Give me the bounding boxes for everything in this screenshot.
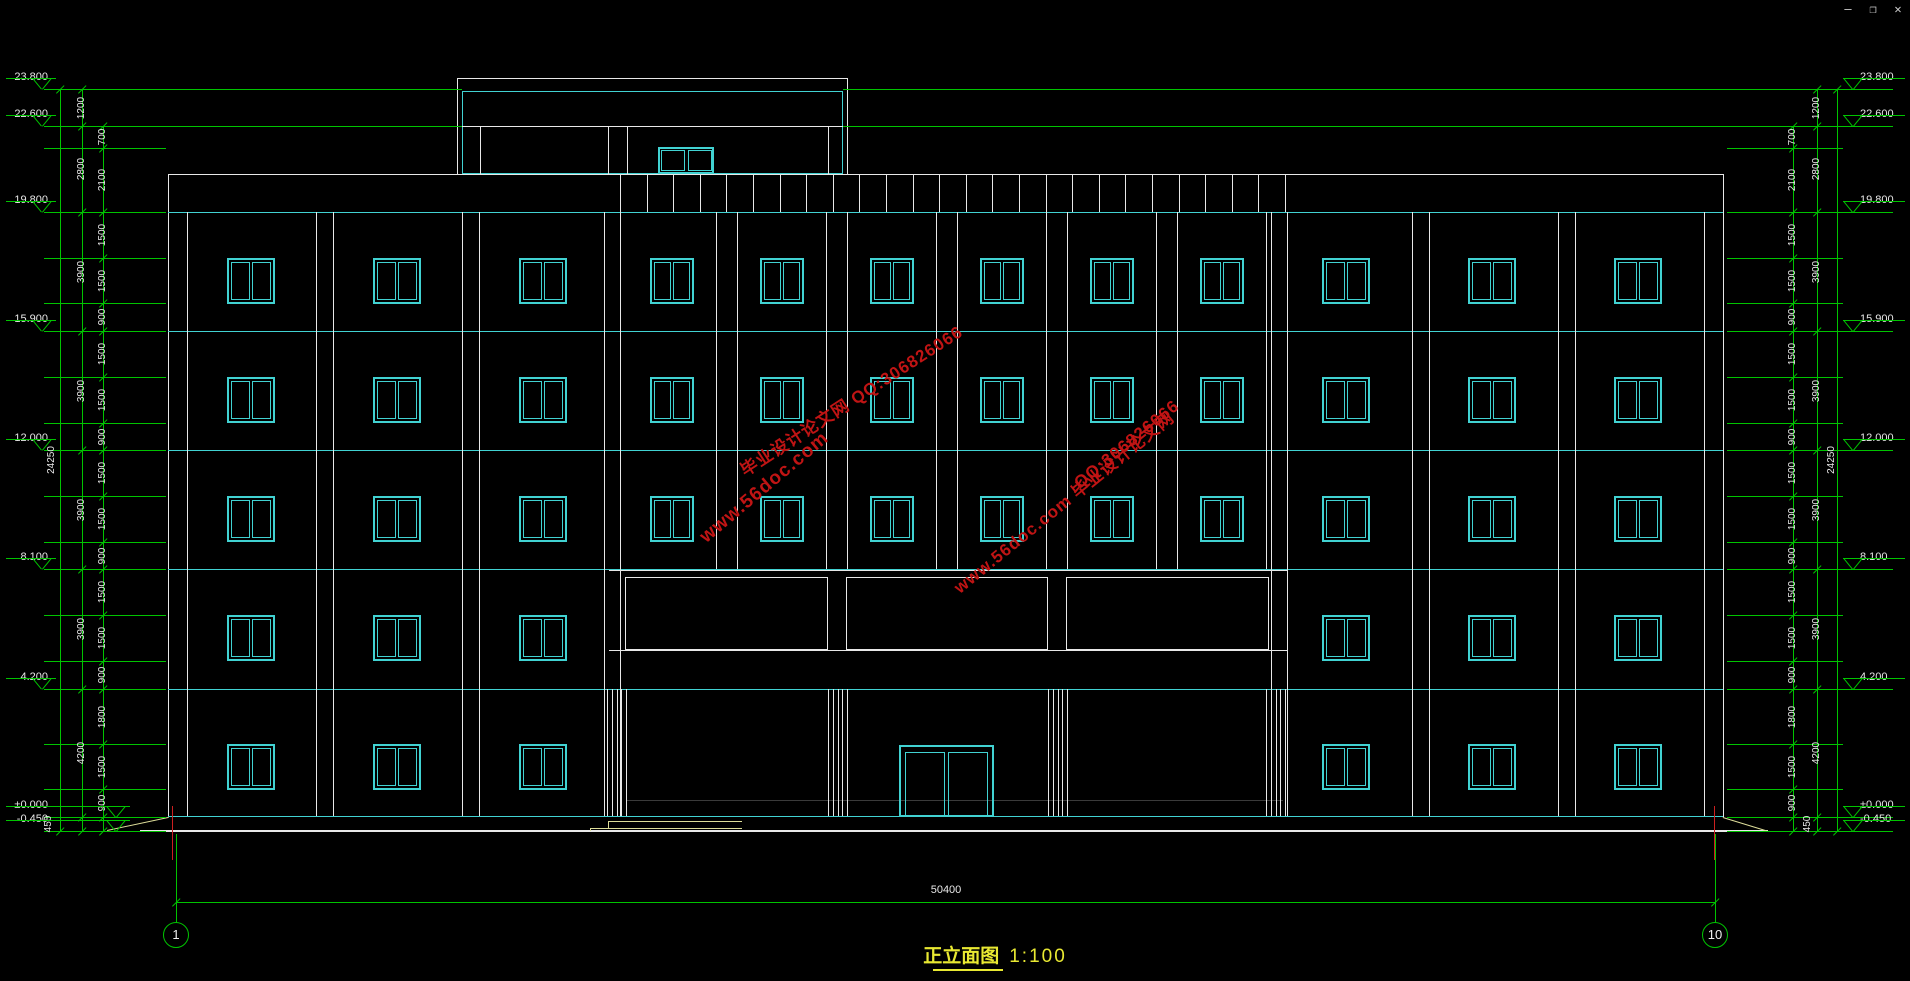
band-mullion	[780, 174, 781, 212]
column-line	[1280, 689, 1281, 816]
column-line	[1276, 689, 1277, 816]
dim-ext-line	[1727, 212, 1843, 213]
dim-label: 3900	[76, 232, 88, 312]
spandrel-panel	[625, 577, 828, 650]
window-leaf	[1618, 619, 1637, 657]
dim-ext-line	[1727, 542, 1843, 543]
band-mullion	[673, 174, 674, 212]
level-mark-leg	[1843, 439, 1853, 450]
column-line	[842, 689, 843, 816]
window-leaf	[231, 500, 250, 538]
column-line	[1053, 689, 1054, 816]
mullion-line	[1266, 212, 1267, 569]
window-leaf	[523, 619, 542, 657]
window-leaf	[984, 381, 1001, 419]
window-leaf	[1618, 748, 1637, 786]
window-leaf	[231, 748, 250, 786]
level-mark-line	[1843, 558, 1905, 559]
window-leaf	[377, 262, 396, 300]
drawing-scale: 1:100	[1009, 946, 1067, 968]
window-leaf	[1493, 500, 1512, 538]
window-leaf	[893, 262, 910, 300]
window-leaf	[1326, 381, 1345, 419]
mullion-line	[1067, 212, 1068, 569]
level-mark-leg	[1843, 806, 1853, 817]
window-leaf	[1347, 262, 1366, 300]
window-leaf	[377, 619, 396, 657]
band-mullion	[620, 174, 621, 212]
level-label: 8.100	[0, 551, 48, 563]
window-leaf	[398, 748, 417, 786]
level-mark-line	[1843, 439, 1905, 440]
band-mullion	[859, 174, 860, 212]
window-leaf	[1639, 748, 1658, 786]
band-mullion	[1205, 174, 1206, 212]
penthouse-top	[457, 78, 848, 79]
column-line	[1067, 689, 1068, 816]
window-leaf	[252, 381, 271, 419]
spandrel-panel	[1066, 577, 1269, 650]
level-mark-line	[1843, 115, 1905, 116]
window-leaf	[1472, 500, 1491, 538]
window-leaf	[544, 748, 563, 786]
column-line	[1058, 689, 1059, 816]
floor-line	[168, 212, 1723, 213]
band-mullion	[1258, 174, 1259, 212]
column-line	[1266, 689, 1267, 816]
level-label: 22.600	[0, 108, 48, 120]
band-mullion	[913, 174, 914, 212]
band-mullion	[1179, 174, 1180, 212]
window-leaf	[1347, 748, 1366, 786]
parapet-top-line	[168, 174, 1723, 175]
window-leaf	[1347, 500, 1366, 538]
penthouse-window-leaf	[688, 150, 712, 171]
pier-line	[316, 212, 317, 816]
column-line	[607, 689, 608, 816]
window-leaf	[1618, 500, 1637, 538]
band-mullion	[753, 174, 754, 212]
axis-line	[176, 834, 177, 923]
window-leaf	[377, 748, 396, 786]
band-mullion	[1125, 174, 1126, 212]
window-leaf	[1326, 500, 1345, 538]
column-line	[828, 689, 829, 816]
mullion-line	[957, 212, 958, 569]
window-leaf	[1639, 619, 1658, 657]
band-mullion	[1285, 174, 1286, 212]
window-leaf	[764, 500, 781, 538]
band-mullion	[1232, 174, 1233, 212]
level-mark-leg	[1843, 820, 1853, 831]
window-leaf	[673, 500, 690, 538]
penthouse-band-line	[462, 126, 843, 127]
level-label: 12.000	[1860, 432, 1910, 444]
window-leaf	[1493, 381, 1512, 419]
level-mark-line	[1838, 212, 1893, 213]
dim-ext-line	[1727, 258, 1843, 259]
window-leaf	[764, 381, 781, 419]
level-label: 4.200	[1860, 671, 1910, 683]
dim-label: 900	[97, 763, 109, 843]
dim-ext-line	[1727, 377, 1843, 378]
dim-ext-line	[44, 89, 462, 90]
band-mullion	[939, 174, 940, 212]
window-leaf	[1347, 381, 1366, 419]
column-line	[1285, 689, 1286, 816]
window-leaf	[252, 500, 271, 538]
level-label: -0.450	[0, 813, 48, 825]
overall-width-dimension: 50400	[905, 884, 987, 896]
window-leaf	[1472, 748, 1491, 786]
window-leaf	[398, 262, 417, 300]
column-line	[612, 689, 613, 816]
floor-line	[168, 450, 1723, 451]
window-leaf	[1003, 381, 1020, 419]
window-leaf	[1639, 381, 1658, 419]
pier-line	[333, 212, 334, 816]
window-leaf	[1204, 500, 1221, 538]
dim-ext-line	[1727, 661, 1843, 662]
column-line	[621, 689, 622, 816]
dim-ext-line	[843, 126, 1843, 127]
level-label: ±0.000	[1860, 799, 1910, 811]
mullion-line	[936, 212, 937, 569]
window-leaf	[231, 619, 250, 657]
dim-label: 3900	[1811, 589, 1823, 669]
column-line	[1062, 689, 1063, 816]
axis-line	[1715, 834, 1716, 923]
dim-label: 3900	[76, 470, 88, 550]
level-mark-leg	[116, 806, 126, 817]
window-leaf	[544, 262, 563, 300]
level-label: 19.800	[0, 194, 48, 206]
dim-label-total: 24250	[1826, 420, 1838, 500]
panel-top-line	[609, 570, 1287, 571]
step-line	[590, 828, 742, 829]
window-leaf	[544, 500, 563, 538]
level-label: 15.900	[0, 313, 48, 325]
level-mark-line	[1838, 569, 1893, 570]
window-leaf	[1326, 748, 1345, 786]
dim-ext-line	[1727, 789, 1843, 790]
penthouse-mullion	[608, 126, 609, 174]
dim-label: 3900	[76, 589, 88, 669]
window-leaf	[252, 262, 271, 300]
level-mark-leg	[1843, 115, 1853, 126]
window-leaf	[783, 500, 800, 538]
dim-ext-line	[1727, 689, 1843, 690]
window-leaf	[1347, 619, 1366, 657]
window-leaf	[1223, 262, 1240, 300]
wall-right	[1723, 174, 1724, 817]
pier-line	[479, 212, 480, 816]
dim-label: 4200	[76, 713, 88, 793]
level-mark-line	[1843, 320, 1905, 321]
dim-ext-line	[843, 89, 1843, 90]
column-line	[833, 689, 834, 816]
level-label: 23.800	[1860, 71, 1910, 83]
window-leaf	[1223, 381, 1240, 419]
window-leaf	[654, 500, 671, 538]
level-mark-leg	[1853, 820, 1863, 831]
dim-ext-line	[1727, 744, 1843, 745]
dim-label: 2800	[1811, 129, 1823, 209]
dim-ext-line	[1727, 569, 1843, 570]
window-leaf	[231, 262, 250, 300]
band-mullion	[1099, 174, 1100, 212]
level-mark-leg	[1843, 558, 1853, 569]
step-line	[608, 821, 742, 822]
pier-line	[1429, 212, 1430, 816]
dim-label: 3900	[76, 351, 88, 431]
dim-ext-line	[1727, 331, 1843, 332]
penthouse-window-leaf	[661, 150, 685, 171]
dim-label: 3900	[1811, 470, 1823, 550]
cad-canvas: — ❐ ✕ 1200120028002800390039003900390039…	[0, 0, 1910, 981]
dim-ext-line	[1727, 303, 1843, 304]
band-mullion	[992, 174, 993, 212]
window-leaf	[1204, 381, 1221, 419]
window-leaf	[1639, 262, 1658, 300]
window-leaf	[764, 262, 781, 300]
window-leaf	[654, 262, 671, 300]
pier-line	[1287, 212, 1288, 816]
band-mullion	[806, 174, 807, 212]
column-line	[1048, 689, 1049, 816]
wall-left	[168, 174, 169, 817]
level-mark-leg	[1843, 320, 1853, 331]
band-mullion	[1046, 174, 1047, 212]
level-mark-line	[1843, 78, 1905, 79]
band-mullion	[966, 174, 967, 212]
band-mullion	[1019, 174, 1020, 212]
level-label: 4.200	[0, 671, 48, 683]
window-leaf	[1493, 619, 1512, 657]
window-leaf	[231, 381, 250, 419]
level-mark-line	[6, 806, 130, 807]
drawing-title: 正立面图	[923, 941, 999, 968]
level-mark-line	[1838, 450, 1893, 451]
window-leaf	[783, 262, 800, 300]
penthouse-box	[462, 91, 843, 174]
axis-bubble-1: 1	[163, 922, 189, 948]
pier-line	[1575, 212, 1576, 816]
penthouse-mullion	[480, 126, 481, 174]
close-icon[interactable]: ✕	[1890, 2, 1906, 17]
window-leaf	[1618, 262, 1637, 300]
level-label: 23.800	[0, 71, 48, 83]
pier-line	[1412, 212, 1413, 816]
level-mark-leg	[1853, 115, 1863, 126]
level-label: 8.100	[1860, 551, 1910, 563]
pier-line	[604, 212, 605, 816]
mullion-line	[1177, 212, 1178, 569]
level-label: 15.900	[1860, 313, 1910, 325]
window-leaf	[544, 619, 563, 657]
window-leaf	[1113, 262, 1130, 300]
dim-label: 900	[1787, 763, 1799, 843]
window-leaf	[874, 262, 891, 300]
level-mark-leg	[1843, 201, 1853, 212]
window-leaf	[523, 381, 542, 419]
window-leaf	[1472, 262, 1491, 300]
panel-band-line	[609, 650, 1287, 651]
floor-line	[168, 689, 1723, 690]
band-mullion	[700, 174, 701, 212]
level-mark-leg	[1843, 78, 1853, 89]
entrance-door-leaf	[905, 752, 945, 816]
column-line	[847, 689, 848, 816]
band-mullion	[886, 174, 887, 212]
column-line	[626, 689, 627, 816]
window-leaf	[1472, 619, 1491, 657]
step-riser	[590, 828, 591, 831]
penthouse-mullion	[828, 126, 829, 174]
window-leaf	[1113, 381, 1130, 419]
pier-line	[187, 212, 188, 816]
dim-ext-line	[1727, 148, 1843, 149]
level-mark-leg	[1853, 320, 1863, 331]
band-mullion	[647, 174, 648, 212]
restore-icon[interactable]: ❐	[1865, 2, 1881, 17]
window-leaf	[1493, 262, 1512, 300]
window-leaf	[523, 748, 542, 786]
window-leaf	[1094, 381, 1111, 419]
window-leaf	[1472, 381, 1491, 419]
penthouse-mullion	[627, 126, 628, 174]
dim-label: 4200	[1811, 713, 1823, 793]
column-line	[838, 689, 839, 816]
level-mark-line	[1838, 689, 1893, 690]
level-label: 22.600	[1860, 108, 1910, 120]
dim-label: 3900	[1811, 232, 1823, 312]
axis-line-red	[172, 806, 173, 860]
level-mark-line	[1843, 820, 1905, 821]
mullion-line	[826, 212, 827, 569]
spandrel-panel	[846, 577, 1048, 650]
level-mark-leg	[1853, 439, 1863, 450]
entrance-door-leaf	[948, 752, 988, 816]
dim-ext-line	[1727, 615, 1843, 616]
level-mark-leg	[1843, 678, 1853, 689]
window-leaf	[673, 262, 690, 300]
pier-line	[1704, 212, 1705, 816]
window-leaf	[1003, 262, 1020, 300]
pier-line	[1558, 212, 1559, 816]
level-mark-line	[1843, 678, 1905, 679]
window-titlebar: — ❐ ✕	[1840, 2, 1906, 17]
level-mark-line	[1843, 201, 1905, 202]
column-line	[617, 689, 618, 816]
grade-line	[140, 830, 1768, 832]
axis-bubble-10: 10	[1702, 922, 1728, 948]
window-leaf	[1326, 619, 1345, 657]
level-label: 19.800	[1860, 194, 1910, 206]
dim-label: 450	[1802, 784, 1814, 864]
level-mark-leg	[1853, 78, 1863, 89]
window-leaf	[984, 262, 1001, 300]
band-mullion	[1152, 174, 1153, 212]
window-leaf	[523, 262, 542, 300]
level-mark-line	[1838, 331, 1893, 332]
window-leaf	[1618, 381, 1637, 419]
level-label: -0.450	[1860, 813, 1910, 825]
level-mark-line	[6, 820, 130, 821]
level-mark-leg	[1853, 678, 1863, 689]
window-leaf	[1493, 748, 1512, 786]
window-leaf	[377, 500, 396, 538]
window-leaf	[654, 381, 671, 419]
level-mark-line	[1838, 126, 1893, 127]
window-leaf	[398, 500, 417, 538]
window-leaf	[783, 381, 800, 419]
dim-label: 3900	[1811, 351, 1823, 431]
mullion-line	[620, 212, 621, 569]
dim-chain-line	[60, 89, 61, 831]
step-riser	[608, 821, 609, 828]
level-mark-leg	[1853, 201, 1863, 212]
window-leaf	[893, 500, 910, 538]
dim-ext-line	[1727, 817, 1843, 818]
window-leaf	[874, 500, 891, 538]
minimize-icon[interactable]: —	[1840, 2, 1856, 17]
band-mullion	[726, 174, 727, 212]
window-leaf	[673, 381, 690, 419]
window-leaf	[1639, 500, 1658, 538]
level-mark-line	[1838, 831, 1893, 832]
window-leaf	[1113, 500, 1130, 538]
level-mark-line	[1843, 806, 1905, 807]
window-leaf	[252, 619, 271, 657]
band-mullion	[833, 174, 834, 212]
band-mullion	[1072, 174, 1073, 212]
window-leaf	[252, 748, 271, 786]
window-leaf	[1326, 262, 1345, 300]
drawing-title-block: 正立面图 1:100	[880, 941, 1110, 968]
pier-line	[462, 212, 463, 816]
window-leaf	[398, 381, 417, 419]
level-label: 12.000	[0, 432, 48, 444]
dim-ext-line	[1727, 831, 1843, 832]
window-leaf	[1204, 262, 1221, 300]
column-line	[1271, 689, 1272, 816]
window-leaf	[984, 500, 1001, 538]
window-leaf	[377, 381, 396, 419]
window-leaf	[398, 619, 417, 657]
window-leaf	[893, 381, 910, 419]
window-leaf	[544, 381, 563, 419]
level-mark-leg	[1853, 558, 1863, 569]
window-leaf	[1094, 500, 1111, 538]
level-label: ±0.000	[0, 799, 48, 811]
dim-label: 2800	[76, 129, 88, 209]
level-mark-line	[1838, 89, 1893, 90]
window-leaf	[1223, 500, 1240, 538]
title-underline	[933, 969, 1003, 971]
window-leaf	[1094, 262, 1111, 300]
mullion-line	[1156, 212, 1157, 569]
overall-dim-line	[176, 902, 1715, 903]
window-leaf	[523, 500, 542, 538]
